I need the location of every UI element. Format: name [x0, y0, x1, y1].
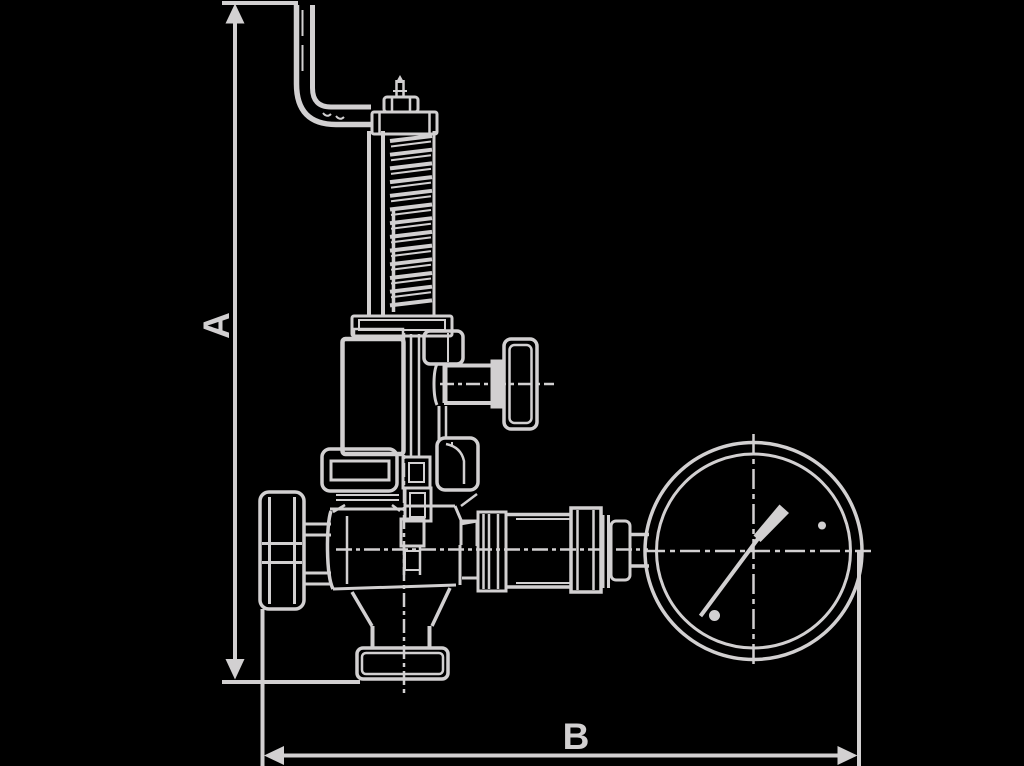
- svg-text:A: A: [196, 312, 237, 339]
- svg-text:B: B: [563, 716, 590, 757]
